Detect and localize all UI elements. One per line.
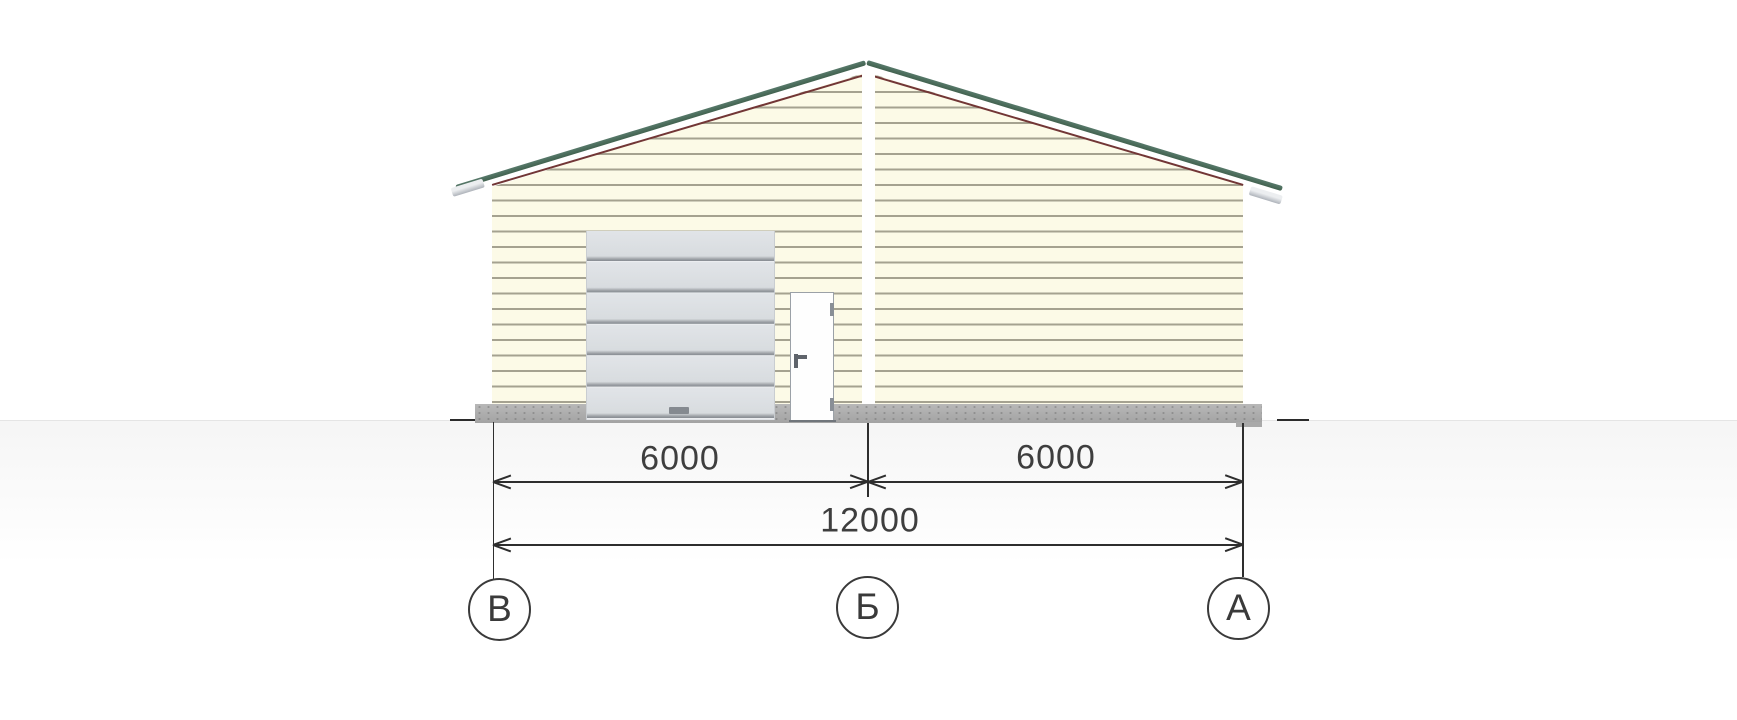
door-hinge-top — [830, 303, 834, 316]
gable-center-strip — [862, 62, 876, 404]
dimension-line-total — [493, 544, 1243, 546]
axis-marker-v: В — [468, 578, 531, 641]
dimension-label-total-span: 12000 — [820, 502, 920, 541]
ground-line-segment-left — [450, 419, 478, 421]
sectional-garage-door — [586, 231, 775, 420]
elevation-drawing-canvas: 6000 6000 12000 В Б А — [0, 0, 1737, 720]
garage-door-handle — [669, 407, 689, 414]
axis-marker-b: Б — [836, 576, 899, 639]
entry-door-threshold — [789, 420, 836, 423]
extension-line-axis-a — [1242, 423, 1244, 577]
axis-marker-v-label: В — [487, 588, 512, 630]
axis-marker-b-label: Б — [855, 586, 879, 628]
door-handle-icon — [798, 355, 807, 359]
dimension-label-left-span: 6000 — [640, 440, 720, 479]
foundation-step — [1236, 422, 1262, 427]
ground-line-segment-right — [1277, 419, 1309, 421]
extension-line-axis-v — [493, 422, 495, 579]
axis-marker-a-label: А — [1226, 587, 1251, 629]
axis-marker-a: А — [1207, 577, 1270, 640]
extension-line-axis-b — [867, 423, 869, 497]
dimension-label-right-span: 6000 — [1016, 439, 1096, 478]
door-hinge-bottom — [830, 398, 834, 411]
